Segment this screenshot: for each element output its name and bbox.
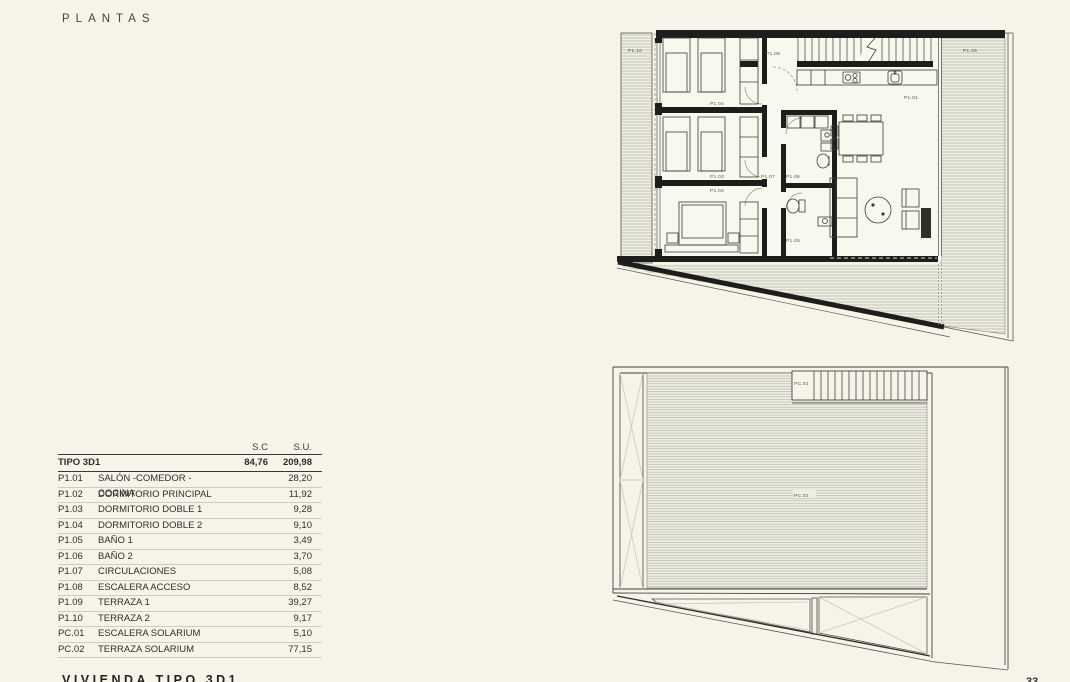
terrace-p110 (621, 33, 655, 263)
area-table: S.C S.U. TIPO 3D1 84,76 209,98 P1.01SALÓ… (58, 441, 322, 658)
label-p105: P1.05 (786, 238, 800, 244)
col-header-sc: S.C (224, 441, 268, 454)
floor-plan-solarium: PC.01 PC.02 (610, 362, 1012, 680)
footer-caption: VIVIENDA TIPO 3D1 (62, 674, 239, 682)
table-row: P1.06BAÑO 23,70 (58, 550, 322, 566)
table-row: PC.02TERRAZA SOLARIUM77,15 (58, 643, 322, 659)
terrace-pc02 (647, 373, 927, 588)
label-p106: P1.06 (786, 174, 800, 180)
area-table-header: S.C S.U. (58, 441, 322, 454)
label-p108: P1.08 (766, 51, 780, 57)
label-p103: P1.03 (710, 174, 724, 180)
table-row: P1.08ESCALERA ACCESO8,52 (58, 581, 322, 597)
label-p109: P1.09 (963, 48, 977, 54)
solarium-stair: PC.01 (792, 371, 927, 403)
table-row: P1.07CIRCULACIONES5,08 (58, 565, 322, 581)
floor-plan-level1: P1.10 P1.04 P1.08 P1.09 P1.01 P1.03 P1.0… (615, 25, 1017, 345)
table-row: P1.05BAÑO 13,49 (58, 534, 322, 550)
label-pc02: PC.02 (794, 493, 809, 499)
col-header-su: S.U. (268, 441, 312, 454)
table-row: P1.10TERRAZA 29,17 (58, 612, 322, 628)
label-p102: P1.02 (710, 188, 724, 194)
interior-floor (656, 33, 941, 261)
table-row: P1.01SALÓN -COMEDOR - COCINA28,20 (58, 472, 322, 488)
table-summary-row: TIPO 3D1 84,76 209,98 (58, 454, 322, 472)
tipo-sc: 84,76 (224, 455, 268, 471)
tipo-label: TIPO 3D1 (58, 455, 224, 471)
table-row: P1.03DORMITORIO DOBLE 19,28 (58, 503, 322, 519)
page-title: PLANTAS (62, 13, 156, 25)
label-p110: P1.10 (628, 48, 642, 54)
label-p104: P1.04 (710, 101, 724, 107)
tipo-su: 209,98 (268, 455, 312, 471)
page-number: 33 (1026, 677, 1038, 682)
label-pc01: PC.01 (794, 381, 809, 387)
table-row: P1.02DORMITORIO PRINCIPAL11,92 (58, 488, 322, 504)
label-p107: P1.07 (761, 174, 775, 180)
table-row: P1.04DORMITORIO DOBLE 29,10 (58, 519, 322, 535)
label-p101: P1.01 (904, 95, 918, 101)
sloped-brace-panels (613, 596, 1008, 670)
brochure-page: PLANTAS S.C S.U. TIPO 3D1 84,76 209,98 P… (0, 0, 1070, 682)
table-row: P1.09TERRAZA 139,27 (58, 596, 322, 612)
braced-strip (620, 373, 643, 589)
table-row: PC.01ESCALERA SOLARIUM5,10 (58, 627, 322, 643)
